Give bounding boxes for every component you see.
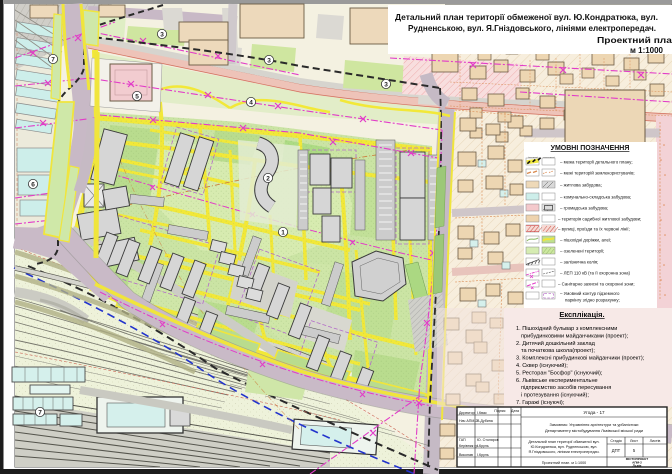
svg-text:– громадська забудова;: – громадська забудова; (560, 206, 608, 211)
svg-text:Підпис: Підпис (494, 409, 505, 413)
svg-text:– вулиці, проїзди та їх червон: – вулиці, проїзди та їх червоні лінії; (558, 227, 630, 232)
svg-text:Директор: Директор (459, 411, 475, 415)
svg-text:Стадія: Стадія (610, 439, 621, 443)
svg-text:Львів: Львів (633, 464, 642, 468)
svg-text:паркінгу згідно розрахунку;: паркінгу згідно розрахунку; (565, 298, 620, 303)
svg-text:– пішохідні доріжки, алеї;: – пішохідні доріжки, алеї; (560, 238, 611, 243)
svg-text:Угода - 17: Угода - 17 (583, 410, 605, 415)
svg-text:– межі територій землекористув: – межі територій землекористувачів; (560, 171, 635, 176)
svg-text:3. Комплексні прибудинкові май: 3. Комплексні прибудинкові майданчики (п… (516, 355, 645, 362)
svg-text:– комунально-складська забудов: – комунально-складська забудова; (560, 195, 631, 200)
svg-text:5. Ресторан "Босфор" (існуючий: 5. Ресторан "Босфор" (існуючий); (516, 369, 603, 376)
svg-text:Проектний план. м 1:1000: Проектний план. м 1:1000 (542, 461, 586, 465)
svg-text:2. Дитячий дошкільний заклад: 2. Дитячий дошкільний заклад (516, 340, 596, 347)
svg-text:Департаменту містобудування Ль: Департаменту містобудування Львівської м… (545, 428, 643, 433)
svg-text:6. Львівське експериментальне: 6. Львівське експериментальне (516, 378, 598, 384)
svg-text:Замовник: Управління архітекту: Замовник: Управління архітектури та урба… (550, 422, 639, 427)
svg-text:Проектний план: Проектний план (597, 35, 672, 45)
svg-text:і протезування (існуючий);: і протезування (існуючий); (521, 392, 589, 399)
svg-text:– Санітарно захисні та охоронн: – Санітарно захисні та охоронні зони; (558, 282, 635, 287)
svg-text:Дата: Дата (511, 409, 519, 413)
svg-text:5: 5 (135, 94, 139, 101)
svg-text:3: 3 (384, 82, 388, 89)
svg-text:підприємство засобів пересуван: підприємство засобів пересування (521, 385, 611, 391)
svg-text:Нач АПМ-2: Нач АПМ-2 (459, 419, 478, 423)
svg-text:Листів: Листів (650, 439, 661, 443)
svg-text:3: 3 (267, 58, 271, 65)
svg-text:та початкова школа(проект);: та початкова школа(проект); (521, 348, 595, 354)
svg-text:4. Сквер (існуючий);: 4. Сквер (існуючий); (516, 362, 568, 369)
svg-text:Експлікація.: Експлікація. (559, 310, 604, 319)
svg-text:– житлова забудова;: – житлова забудова; (560, 183, 602, 188)
svg-text:7: 7 (51, 57, 55, 64)
svg-text:Керівник гр.: Керівник гр. (459, 444, 479, 448)
svg-text:прибудинковими майданчиками (п: прибудинковими майданчиками (проект); (521, 332, 629, 339)
svg-text:Ю. Столяров: Ю. Столяров (477, 438, 499, 442)
svg-text:– Умовний контур підземного: – Умовний контур підземного (560, 291, 620, 296)
svg-text:– залізнична колія;: – залізнична колія; (560, 260, 598, 265)
svg-text:Рудненською, вул. Я.Гніздовськ: Рудненською, вул. Я.Гніздовського, лінія… (408, 23, 656, 33)
svg-text:– межа території детального пл: – межа території детального плану; (560, 160, 633, 165)
svg-text:Ю.Кондратюка, вул. Рудненською: Ю.Кондратюка, вул. Рудненською, вул. (531, 445, 598, 449)
svg-text:В.Дубина: В.Дубина (477, 419, 493, 423)
svg-text:ДПТ: ДПТ (612, 448, 621, 453)
svg-text:І.Квас: І.Квас (477, 411, 487, 415)
svg-text:– озеленені території;: – озеленені території; (560, 249, 604, 254)
svg-text:7: 7 (38, 410, 42, 417)
svg-text:1: 1 (281, 230, 285, 237)
svg-text:Детальний план території обмеж: Детальний план території обмеженої вул. … (395, 12, 658, 22)
svg-text:7. Гаражі (існуючі);: 7. Гаражі (існуючі); (516, 400, 565, 406)
svg-text:4: 4 (249, 100, 253, 107)
svg-text:І.Круль: І.Круль (477, 453, 489, 457)
svg-text:Я.Гніздовського, лініями елект: Я.Гніздовського, лініями електропередач. (528, 450, 599, 454)
svg-text:ГАП: ГАП (459, 438, 466, 442)
svg-text:УМОВНІ ПОЗНАЧЕННЯ: УМОВНІ ПОЗНАЧЕННЯ (551, 145, 630, 152)
svg-text:– територія садибної житлової: – територія садибної житлової забудови; (558, 217, 641, 222)
svg-text:– ЛЕП 110 кВ (та її охоронна з: – ЛЕП 110 кВ (та її охоронна зона) (560, 271, 631, 276)
svg-text:2: 2 (266, 176, 270, 183)
svg-text:м 1:1000: м 1:1000 (630, 45, 663, 55)
svg-text:І.Круль: І.Круль (477, 444, 489, 448)
svg-text:Виконав: Виконав (459, 453, 473, 457)
svg-text:Лист: Лист (630, 439, 638, 443)
svg-text:Детальний план території обмеж: Детальний план території обмеженої вул. (528, 440, 599, 444)
svg-text:3: 3 (160, 32, 164, 39)
svg-text:1. Пішохідний бульвар з компле: 1. Пішохідний бульвар з комплексними (516, 325, 617, 332)
svg-text:6: 6 (31, 182, 35, 189)
